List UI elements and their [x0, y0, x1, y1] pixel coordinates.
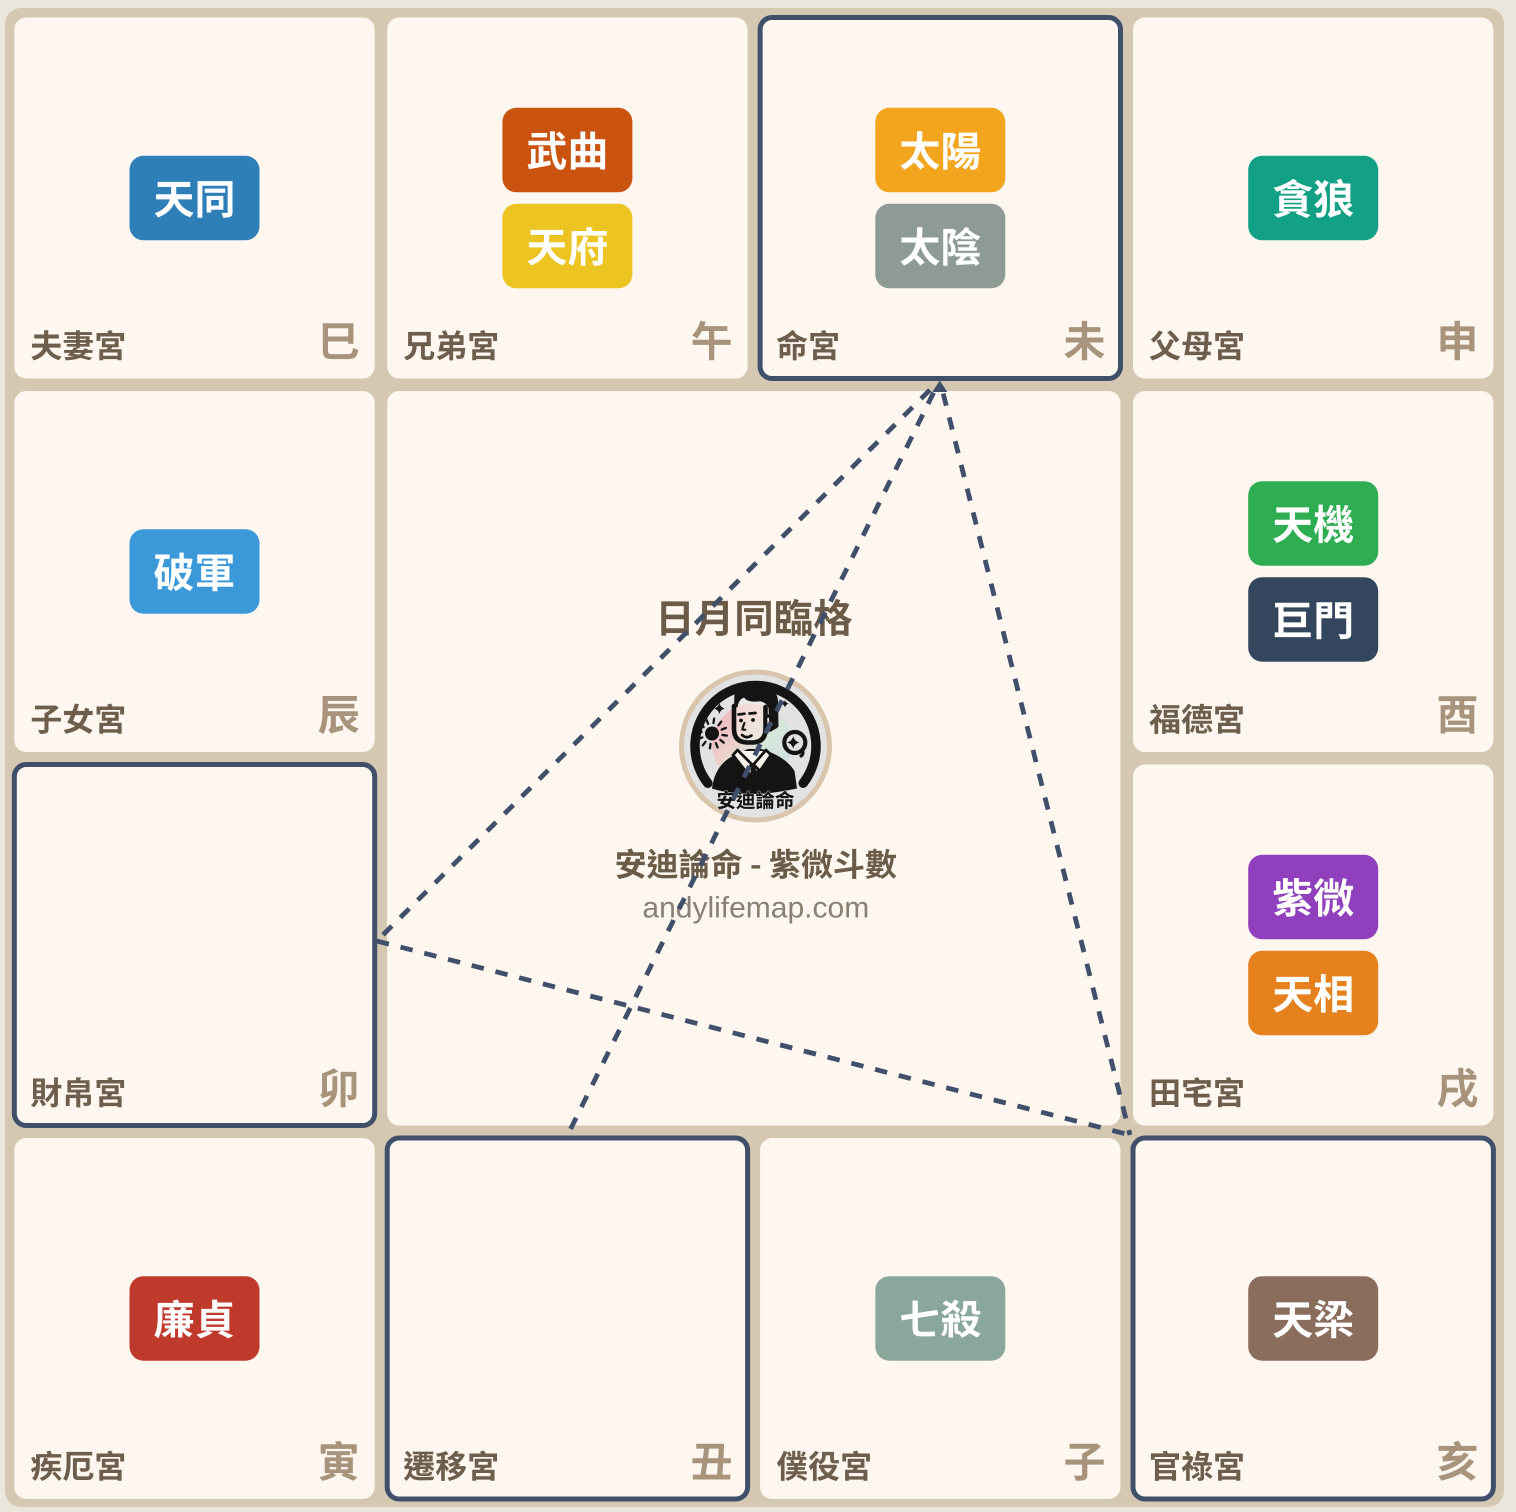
svg-text:andylifemap.com: andylifemap.com	[642, 892, 869, 925]
